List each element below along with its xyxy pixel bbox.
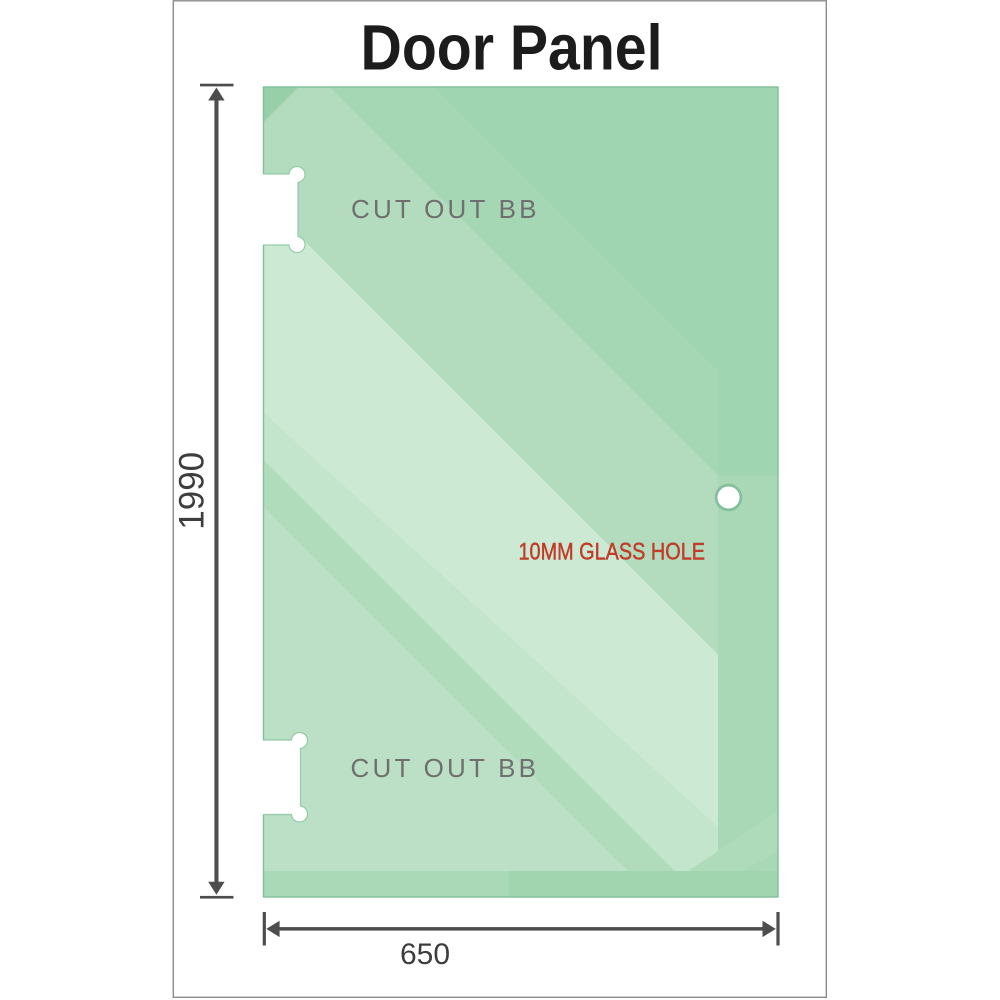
svg-text:Door Panel: Door Panel [361,12,663,84]
svg-text:CUT OUT BB: CUT OUT BB [351,194,537,224]
svg-text:CUT OUT BB: CUT OUT BB [351,753,537,783]
svg-text:650: 650 [400,938,450,971]
svg-text:10MM GLASS HOLE: 10MM GLASS HOLE [519,539,706,566]
svg-text:1990: 1990 [173,452,212,530]
